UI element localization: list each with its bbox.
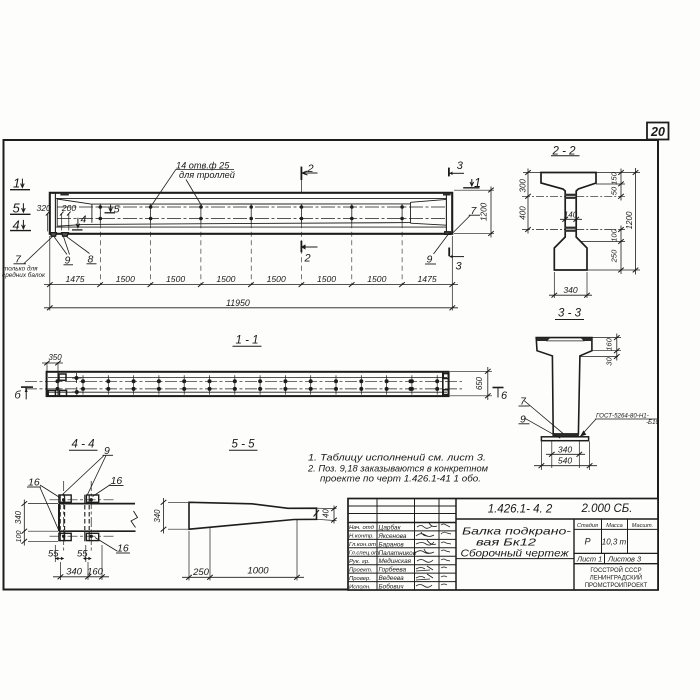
svg-text:1200: 1200 xyxy=(625,211,634,229)
svg-text:Горбеева: Горбеева xyxy=(379,566,407,574)
svg-text:320: 320 xyxy=(37,203,52,213)
svg-text:30: 30 xyxy=(605,357,614,366)
svg-text:Гл.кон.от: Гл.кон.от xyxy=(349,542,376,548)
svg-text:650: 650 xyxy=(475,376,484,390)
svg-text:ЛЕНИНГРАДСКИЙ: ЛЕНИНГРАДСКИЙ xyxy=(590,574,643,582)
svg-text:Масшт.: Масшт. xyxy=(632,523,653,529)
svg-text:проекте по черт 1.426.1-41 1 о: проекте по черт 1.426.1-41 1 обо. xyxy=(320,473,481,483)
svg-text:1500: 1500 xyxy=(317,274,336,284)
svg-text:-Б10: -Б10 xyxy=(646,419,660,426)
svg-text:Рук. гр.: Рук. гр. xyxy=(349,559,370,565)
svg-text:6: 6 xyxy=(501,390,508,402)
svg-text:б: б xyxy=(15,389,22,401)
svg-text:1500: 1500 xyxy=(367,274,386,284)
svg-text:5: 5 xyxy=(114,203,120,215)
svg-text:400: 400 xyxy=(519,206,528,220)
svg-text:100: 100 xyxy=(610,228,619,241)
svg-text:20: 20 xyxy=(650,125,665,139)
svg-text:Провер.: Провер. xyxy=(349,576,371,582)
svg-text:ПРОМСТРОИПРОЕКТ: ПРОМСТРОИПРОЕКТ xyxy=(585,583,648,589)
svg-text:Балка подкрано-: Балка подкрано- xyxy=(462,527,572,538)
svg-text:Нач. отд: Нач. отд xyxy=(349,525,375,531)
svg-text:5: 5 xyxy=(13,201,21,216)
svg-text:1500: 1500 xyxy=(166,274,185,284)
svg-text:Сборочный чертеж: Сборочный чертеж xyxy=(461,548,570,560)
svg-text:ГОССТРОЙ СССР: ГОССТРОЙ СССР xyxy=(590,566,641,574)
svg-text:1.426.1- 4. 2: 1.426.1- 4. 2 xyxy=(488,504,553,516)
svg-text:1200: 1200 xyxy=(480,202,489,221)
svg-text:300: 300 xyxy=(519,179,528,193)
svg-text:Царбак: Царбак xyxy=(379,523,402,531)
svg-text:200: 200 xyxy=(61,203,77,213)
svg-text:Исполн.: Исполн. xyxy=(349,584,371,590)
svg-text:350: 350 xyxy=(48,353,62,362)
svg-text:1. Таблицу исполнений см. лис: 1. Таблицу исполнений см. лист 3. xyxy=(308,453,486,463)
svg-text:1000: 1000 xyxy=(247,565,269,576)
svg-text:3: 3 xyxy=(457,160,464,172)
svg-text:Палатников: Палатников xyxy=(379,550,417,557)
svg-text:3: 3 xyxy=(456,261,463,273)
svg-text:Гл.спец.от: Гл.спец.от xyxy=(349,551,380,557)
svg-text:55: 55 xyxy=(77,549,88,560)
svg-text:250: 250 xyxy=(192,567,210,578)
svg-text:1500: 1500 xyxy=(116,274,135,284)
svg-text:для троллей: для троллей xyxy=(179,170,235,180)
svg-text:1475: 1475 xyxy=(418,274,437,284)
svg-text:Яксенова: Яксенова xyxy=(378,533,407,540)
svg-text:160: 160 xyxy=(87,567,104,578)
svg-text:Листов 3: Листов 3 xyxy=(607,555,642,564)
svg-text:Масса: Масса xyxy=(606,523,623,529)
svg-text:1500: 1500 xyxy=(216,274,235,284)
svg-text:2.000 СБ.: 2.000 СБ. xyxy=(581,503,633,515)
svg-text:50: 50 xyxy=(610,186,619,195)
svg-text:340: 340 xyxy=(563,285,578,295)
svg-text:Лист 1: Лист 1 xyxy=(576,555,602,564)
svg-text:1: 1 xyxy=(13,176,20,191)
svg-text:Проект.: Проект. xyxy=(349,567,372,573)
svg-text:Мединская: Мединская xyxy=(379,557,412,565)
svg-text:340: 340 xyxy=(14,510,23,524)
svg-text:100: 100 xyxy=(14,531,23,543)
svg-text:вая Бк12: вая Бк12 xyxy=(476,538,536,549)
svg-text:Стадия: Стадия xyxy=(577,523,598,529)
svg-text:10,3 т: 10,3 т xyxy=(602,538,627,547)
svg-text:160: 160 xyxy=(605,337,614,350)
svg-text:1475: 1475 xyxy=(65,274,84,284)
svg-text:2: 2 xyxy=(304,253,311,265)
svg-text:340: 340 xyxy=(153,509,162,523)
svg-text:1500: 1500 xyxy=(267,274,286,284)
svg-text:340: 340 xyxy=(558,444,573,454)
svg-text:4: 4 xyxy=(81,213,87,225)
svg-text:Баранов: Баранов xyxy=(379,541,405,548)
svg-text:4 - 4: 4 - 4 xyxy=(71,439,94,451)
svg-text:5 - 5: 5 - 5 xyxy=(231,439,255,451)
svg-text:Р: Р xyxy=(584,537,590,547)
svg-text:14 отв.ф 25: 14 отв.ф 25 xyxy=(176,160,230,170)
svg-text:Бобович: Бобович xyxy=(379,583,405,591)
svg-text:40: 40 xyxy=(322,509,331,518)
svg-text:340: 340 xyxy=(66,567,83,578)
svg-text:2: 2 xyxy=(307,163,314,175)
svg-text:150: 150 xyxy=(610,171,619,184)
svg-text:3 - 3: 3 - 3 xyxy=(558,308,582,320)
svg-text:средних балок: средних балок xyxy=(2,271,46,279)
svg-text:Ведеева: Ведеева xyxy=(379,574,405,582)
svg-text:250: 250 xyxy=(610,249,619,263)
svg-text:2. Поз. 9,18 заказываются в ко: 2. Поз. 9,18 заказываются в конкретном xyxy=(307,463,489,473)
svg-text:540: 540 xyxy=(558,456,573,466)
svg-text:1 - 1: 1 - 1 xyxy=(235,335,258,347)
svg-text:Н.контр.: Н.контр. xyxy=(349,534,374,540)
svg-text:11950: 11950 xyxy=(226,298,250,308)
